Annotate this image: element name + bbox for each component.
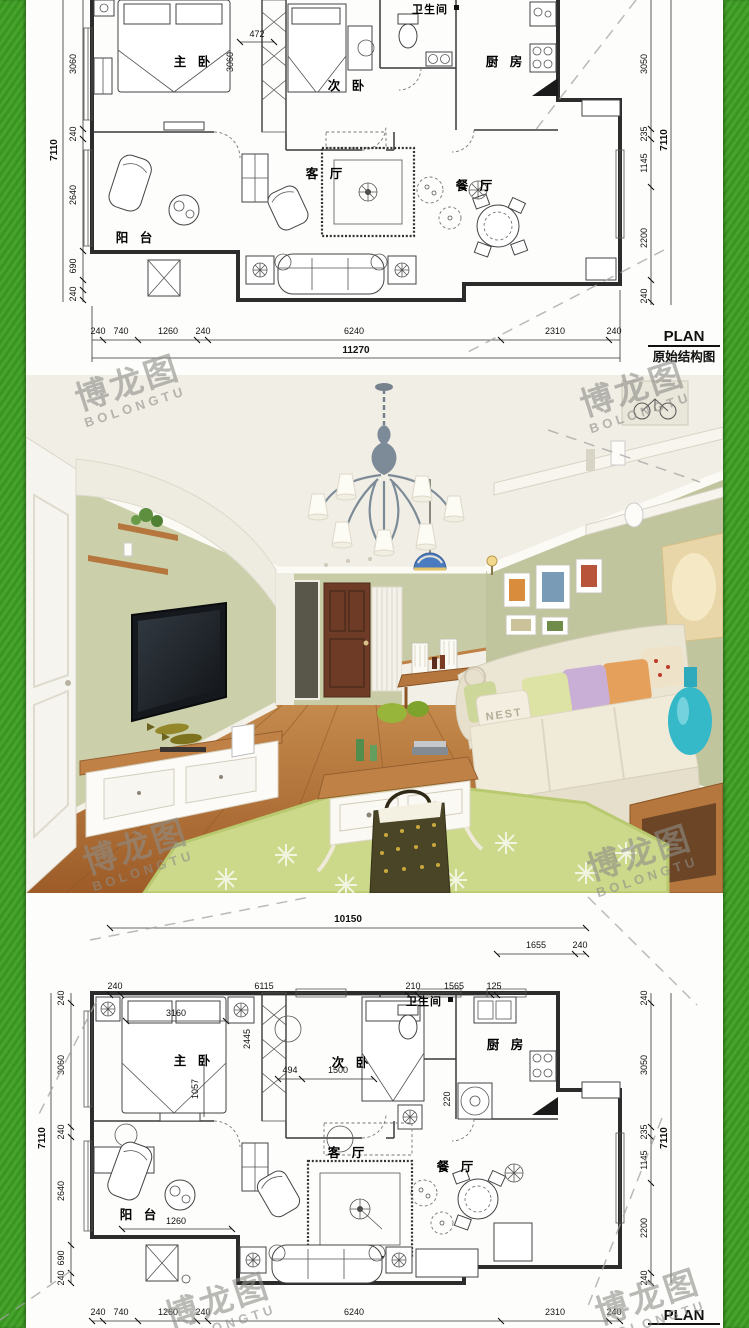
dim: 2200 [639, 1218, 649, 1238]
dim: 125 [486, 981, 501, 991]
dim: 240 [90, 1307, 105, 1317]
floor-plan-layout: 主 卧 次 卧 卫生间 厨 房 客 厅 餐 厅 阳 台 10150 1655 2… [26, 893, 723, 1328]
section-original-plan: 主 卧 次 卧 卫生间 厨 房 客 厅 餐 厅 阳 台 3060 240 264… [26, 0, 723, 375]
room-label-second: 次 卧 [328, 78, 368, 93]
dim-total: 7110 [37, 1127, 48, 1149]
dim: 2310 [545, 326, 565, 336]
dim: 3050 [639, 54, 649, 74]
room-label-kitchen: 厨 房 [487, 1037, 527, 1052]
dim: 690 [56, 1250, 66, 1265]
dim: 240 [195, 1307, 210, 1317]
dim: 240 [107, 981, 122, 991]
bath-marker [448, 997, 453, 1002]
dim: 1260 [158, 1307, 178, 1317]
section-layout-plan: 主 卧 次 卧 卫生间 厨 房 客 厅 餐 厅 阳 台 10150 1655 2… [26, 893, 723, 1328]
dim: 240 [572, 940, 587, 950]
dim: 6115 [254, 981, 273, 991]
floor-plan-original: 主 卧 次 卧 卫生间 厨 房 客 厅 餐 厅 阳 台 3060 240 264… [26, 0, 723, 375]
dim: 1500 [328, 1065, 348, 1075]
dim: 6240 [344, 1307, 364, 1317]
dim: 240 [68, 126, 78, 141]
dim: 1057 [190, 1079, 200, 1099]
room-label-bath: 卫生间 [406, 994, 442, 1008]
dim-total: 10150 [334, 914, 362, 925]
dim: 1565 [444, 981, 464, 991]
dim: 240 [606, 1307, 621, 1317]
dim: 494 [282, 1065, 297, 1075]
dim: 2310 [545, 1307, 565, 1317]
dim: 2640 [56, 1181, 66, 1201]
green-border-right [723, 0, 749, 1328]
dim: 740 [113, 1307, 128, 1317]
dim-total: 7110 [659, 129, 670, 151]
dim: 235 [639, 1124, 649, 1139]
living-room-render: NEST [26, 375, 723, 893]
page: 主 卧 次 卧 卫生间 厨 房 客 厅 餐 厅 阳 台 3060 240 264… [0, 0, 749, 1328]
hallway [276, 573, 402, 705]
plan-title-block: PLAN 平面布置图 [648, 1307, 720, 1328]
room-label-master: 主 卧 [174, 1053, 214, 1068]
dim-total: 7110 [659, 1127, 670, 1149]
plan-title-block: PLAN 原始结构图 [648, 328, 720, 364]
room-label-master: 主 卧 [174, 54, 214, 69]
dim: 240 [606, 326, 621, 336]
dim: 1145 [639, 153, 649, 172]
room-label-balcony: 阳 台 [120, 1207, 160, 1222]
photo-frame [232, 724, 254, 757]
room-label-balcony: 阳 台 [116, 230, 156, 245]
room-label-kitchen: 厨 房 [486, 54, 526, 69]
dim: 240 [639, 288, 649, 303]
dim: 240 [56, 1124, 66, 1139]
dim: 210 [405, 981, 420, 991]
dim: 220 [442, 1091, 452, 1106]
dim: 740 [113, 326, 128, 336]
dim: 1260 [158, 326, 178, 336]
room-label-living: 客 厅 [327, 1145, 368, 1160]
plan-subtitle: 原始结构图 [653, 349, 716, 364]
dim: 3160 [166, 1008, 186, 1018]
dim: 3050 [639, 1055, 649, 1075]
plan-label: PLAN [664, 1307, 705, 1324]
dim: 1145 [639, 1150, 649, 1169]
dim: 3060 [56, 1055, 66, 1075]
dim: 2200 [639, 228, 649, 248]
dim: 1655 [526, 940, 546, 950]
dim: 240 [639, 1270, 649, 1285]
dim: 472 [249, 29, 264, 39]
dim: 240 [68, 286, 78, 301]
dim: 6240 [344, 326, 364, 336]
dim: 1260 [166, 1216, 186, 1226]
room-label-dining: 餐 厅 [436, 1159, 477, 1174]
dim: 690 [68, 258, 78, 273]
room-label-dining: 餐 厅 [455, 178, 496, 193]
dim-total: 11270 [342, 345, 370, 356]
dim: 240 [56, 1270, 66, 1285]
section-render-photo: NEST [26, 375, 723, 893]
green-border-left [0, 0, 26, 1328]
white-door [26, 437, 76, 893]
dim: 240 [90, 326, 105, 336]
plan-label: PLAN [664, 328, 705, 345]
dim: 240 [639, 990, 649, 1005]
dim: 235 [639, 126, 649, 141]
dim: 2445 [242, 1029, 252, 1049]
dim: 240 [195, 326, 210, 336]
dim-total: 7110 [49, 139, 60, 161]
room-label-bath: 卫生间 [412, 2, 448, 16]
dim: 240 [56, 990, 66, 1005]
dim: 3060 [68, 54, 78, 74]
bath-marker [454, 5, 459, 10]
dim: 3060 [225, 52, 235, 72]
dim: 2640 [68, 185, 78, 205]
room-label-living: 客 厅 [305, 166, 346, 181]
